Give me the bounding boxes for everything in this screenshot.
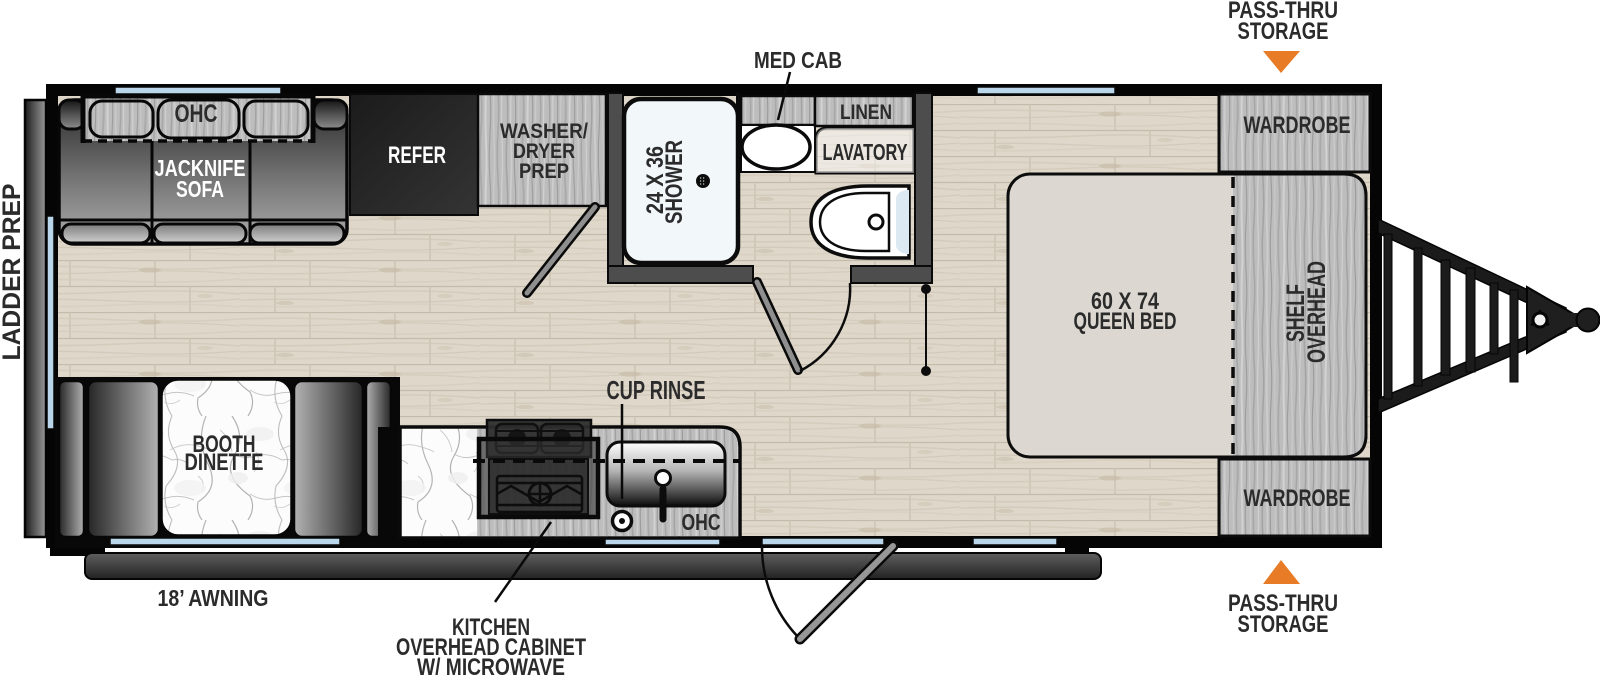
svg-text:W/ MICROWAVE: W/ MICROWAVE — [417, 654, 565, 675]
svg-text:MED CAB: MED CAB — [754, 47, 842, 73]
svg-text:STORAGE: STORAGE — [1238, 611, 1329, 638]
svg-text:QUEEN BED: QUEEN BED — [1074, 308, 1177, 335]
svg-text:SOFA: SOFA — [176, 176, 224, 202]
svg-text:PREP: PREP — [519, 160, 569, 183]
svg-text:LAVATORY: LAVATORY — [823, 139, 908, 165]
svg-text:WARDROBE: WARDROBE — [1244, 113, 1351, 139]
svg-text:STORAGE: STORAGE — [1238, 18, 1329, 45]
svg-text:SHOWER: SHOWER — [661, 140, 688, 224]
svg-text:CUP RINSE: CUP RINSE — [607, 375, 706, 405]
svg-text:OHC: OHC — [682, 509, 721, 535]
svg-text:SHELF: SHELF — [1282, 284, 1310, 342]
svg-text:WARDROBE: WARDROBE — [1244, 486, 1351, 512]
svg-text:OHC: OHC — [175, 100, 218, 128]
svg-text:LINEN: LINEN — [840, 100, 892, 124]
svg-text:REFER: REFER — [388, 142, 446, 169]
svg-text:DINETTE: DINETTE — [185, 450, 264, 476]
svg-text:18’ AWNING: 18’ AWNING — [158, 585, 269, 611]
svg-text:LADDER PREP: LADDER PREP — [0, 184, 26, 361]
